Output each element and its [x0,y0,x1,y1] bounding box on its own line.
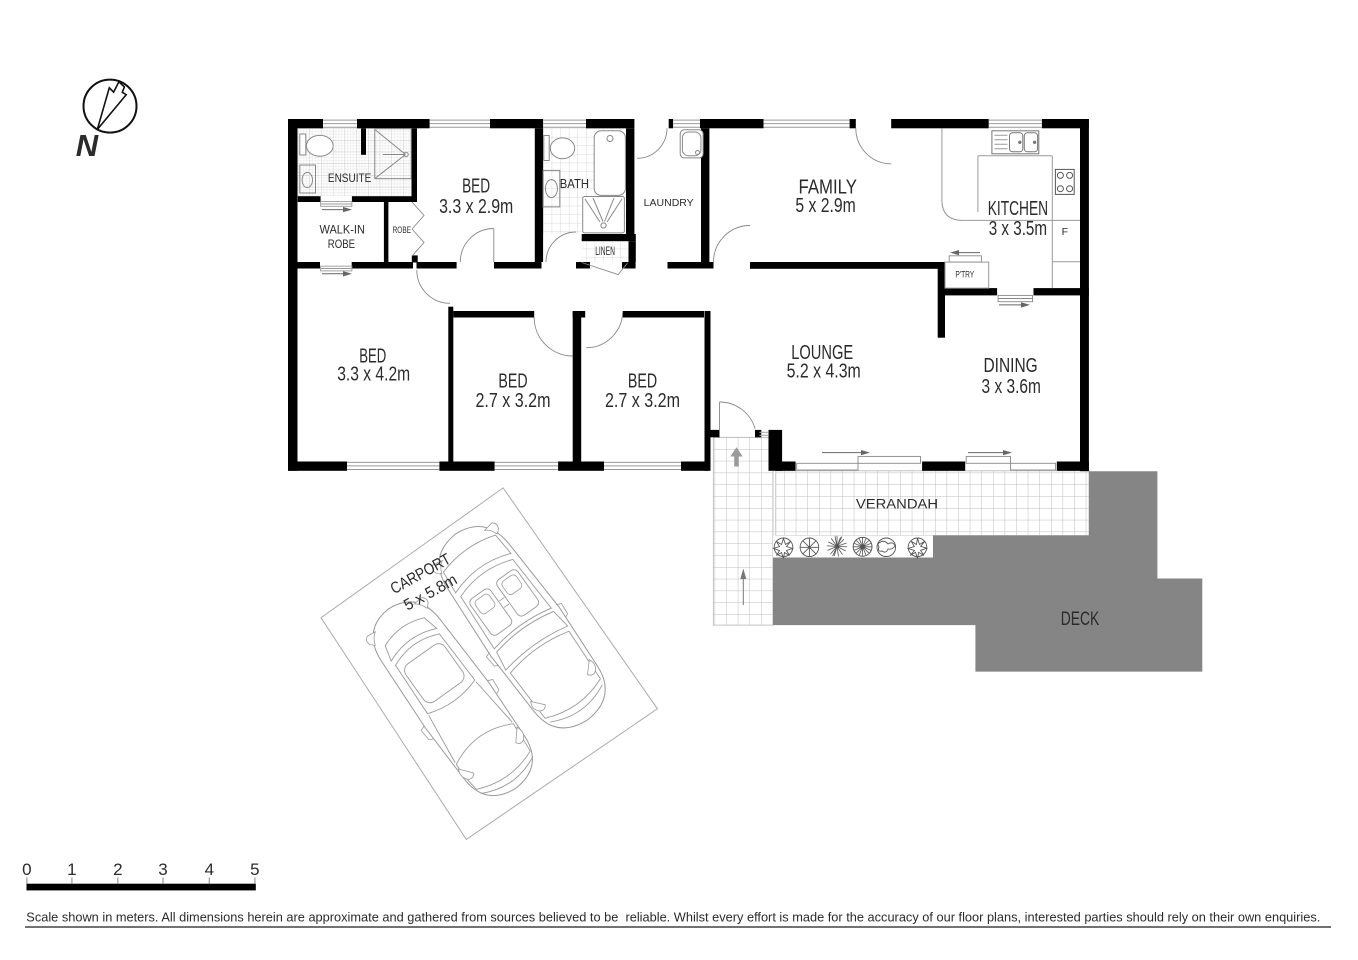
svg-text:ROBE: ROBE [393,225,411,236]
svg-text:WALK-IN: WALK-IN [320,223,365,237]
svg-text:DINING: DINING [984,355,1038,377]
svg-text:2.7 x 3.2m: 2.7 x 3.2m [605,390,680,412]
svg-text:BED: BED [498,370,527,392]
svg-text:BATH: BATH [560,176,589,191]
svg-text:5.2 x 4.3m: 5.2 x 4.3m [787,360,861,382]
svg-text:0: 0 [22,860,31,879]
svg-text:3 x 3.6m: 3 x 3.6m [982,376,1041,398]
svg-text:3.3 x 2.9m: 3.3 x 2.9m [439,196,513,218]
svg-text:LINEN: LINEN [595,246,615,258]
svg-text:BED: BED [628,370,657,392]
svg-text:5 x 2.9m: 5 x 2.9m [795,195,855,217]
svg-text:2.7 x 3.2m: 2.7 x 3.2m [476,390,551,412]
svg-text:KITCHEN: KITCHEN [988,198,1048,220]
svg-text:3 x 3.5m: 3 x 3.5m [989,218,1047,240]
svg-text:ROBE: ROBE [328,237,355,251]
svg-text:P'TRY: P'TRY [955,270,974,280]
svg-text:1: 1 [67,860,76,879]
svg-text:3.3 x 4.2m: 3.3 x 4.2m [337,363,410,385]
svg-text:5: 5 [250,860,259,879]
svg-text:LAUNDRY: LAUNDRY [644,198,694,209]
svg-text:3: 3 [158,860,167,879]
svg-text:Scale shown in meters. All dim: Scale shown in meters. All dimensions he… [26,909,1320,924]
svg-text:F: F [1062,226,1068,238]
svg-text:BED: BED [462,175,490,197]
svg-text:N: N [76,128,99,163]
svg-text:2: 2 [113,860,122,879]
svg-text:DECK: DECK [1061,608,1100,630]
svg-text:4: 4 [205,860,214,879]
svg-text:ENSUITE: ENSUITE [328,171,371,185]
svg-text:VERANDAH: VERANDAH [856,495,938,511]
